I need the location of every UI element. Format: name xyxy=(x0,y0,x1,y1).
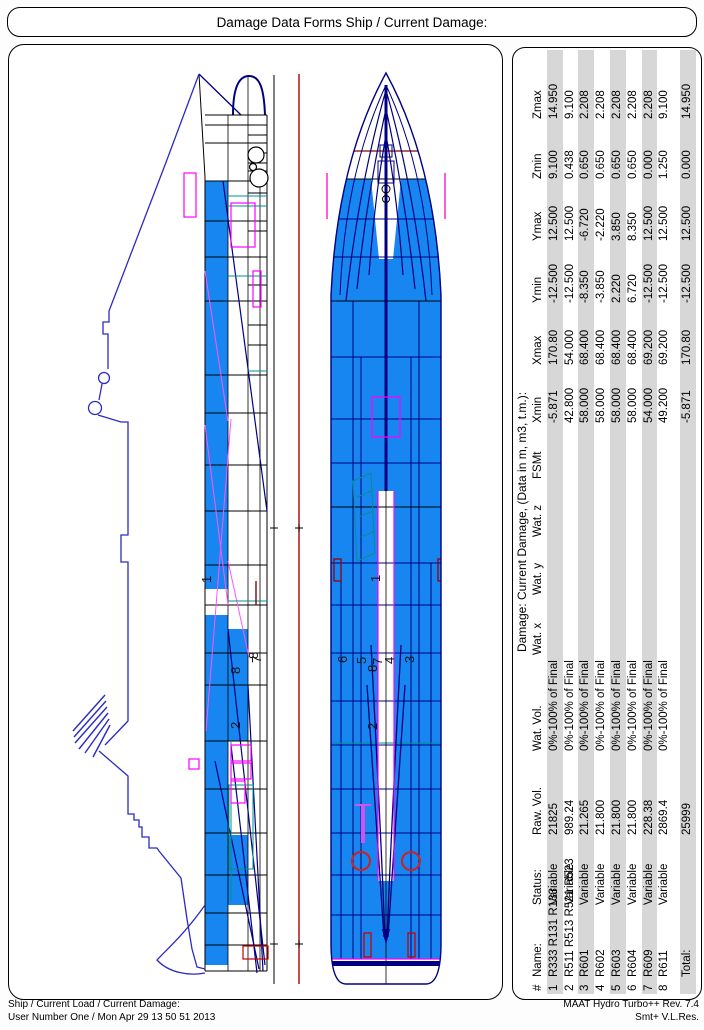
table-cell xyxy=(563,423,579,479)
table-cell: -12.500 xyxy=(680,241,696,303)
table-cell: 9.100 xyxy=(547,119,563,179)
table-cell: R604 xyxy=(626,905,642,977)
table-cell xyxy=(626,595,642,655)
damage-table-panel: Damage: Current Damage, (Data in m, m3, … xyxy=(512,47,702,1000)
table-cell xyxy=(680,423,696,479)
table-cell xyxy=(563,537,579,595)
table-cell xyxy=(563,479,579,537)
table-cell: 42.800 xyxy=(563,365,579,423)
table-cell: 0%-100% of Final xyxy=(563,655,579,751)
footer-app-version: MAAT Hydro Turbo++ Rev. 7.4 xyxy=(563,998,699,1011)
page: Damage Data Forms Ship / Current Damage: xyxy=(0,0,704,1030)
table-cell: 6 xyxy=(626,977,642,991)
table-cell: 68.400 xyxy=(626,303,642,365)
table-cell: -2.220 xyxy=(594,179,610,241)
table-cell: 2.220 xyxy=(610,241,626,303)
table-cell: 58.000 xyxy=(578,365,594,423)
footer-license: Smt+ V.L.Res. xyxy=(563,1011,699,1024)
column-header: Wat. x xyxy=(531,595,547,655)
damage-table-row: 2R511 R513 R521 R523Variable989.240%-100… xyxy=(563,50,579,994)
table-cell: 49.200 xyxy=(657,365,673,423)
table-cell: 21.800 xyxy=(594,751,610,835)
table-cell: 0%-100% of Final xyxy=(610,655,626,751)
compartment-label-5: 5 xyxy=(354,657,369,664)
damage-table-row: 5R603Variable21.8000%-100% of Final58.00… xyxy=(610,50,626,994)
table-cell xyxy=(642,537,658,595)
plan-view: 16587432 xyxy=(327,73,445,984)
table-cell: 12.500 xyxy=(657,179,673,241)
table-cell: 2 xyxy=(563,977,579,991)
table-cell xyxy=(610,479,626,537)
table-cell: R602 xyxy=(594,905,610,977)
centerline-bar xyxy=(385,85,388,491)
table-cell: -8.350 xyxy=(578,241,594,303)
table-cell: 58.000 xyxy=(594,365,610,423)
table-cell: -12.500 xyxy=(563,241,579,303)
footer-right: MAAT Hydro Turbo++ Rev. 7.4 Smt+ V.L.Res… xyxy=(563,998,699,1024)
table-cell: 170.80 xyxy=(547,303,563,365)
table-cell: 68.400 xyxy=(594,303,610,365)
page-title: Damage Data Forms Ship / Current Damage: xyxy=(217,15,488,30)
table-cell: 0%-100% of Final xyxy=(578,655,594,751)
table-cell xyxy=(547,595,563,655)
table-cell: 989.24 xyxy=(563,751,579,835)
table-cell: -6.720 xyxy=(578,179,594,241)
compartment-label-3: 3 xyxy=(402,656,417,663)
table-cell xyxy=(578,423,594,479)
compartment-label-1: 1 xyxy=(199,576,214,583)
table-cell: 0%-100% of Final xyxy=(642,655,658,751)
table-cell: 8.350 xyxy=(626,179,642,241)
table-cell: 6.720 xyxy=(626,241,642,303)
table-cell: 12.500 xyxy=(563,179,579,241)
table-cell: -12.500 xyxy=(547,241,563,303)
damage-table-title: Damage: Current Damage, (Data in m, m3, … xyxy=(514,50,531,994)
compartment-label-8: 8 xyxy=(228,667,243,674)
table-cell: Variable xyxy=(626,835,642,905)
bulbous-bow-dome xyxy=(233,76,265,115)
table-cell xyxy=(578,479,594,537)
table-cell xyxy=(547,479,563,537)
table-cell: 0%-100% of Final xyxy=(657,655,673,751)
column-header: Raw. Vol. xyxy=(531,751,547,835)
table-cell: 0.000 xyxy=(680,119,696,179)
column-header: Status: xyxy=(531,835,547,905)
table-cell: Variable xyxy=(657,835,673,905)
table-cell: 12.500 xyxy=(680,179,696,241)
table-cell: 14.950 xyxy=(680,59,696,119)
table-cell: 3.850 xyxy=(610,179,626,241)
table-cell: -5.871 xyxy=(547,365,563,423)
table-cell: 0.650 xyxy=(610,119,626,179)
table-cell: 12.500 xyxy=(642,179,658,241)
footer-load-line: Ship / Current Load / Current Damage: xyxy=(8,998,215,1011)
table-cell xyxy=(680,835,696,905)
column-header: Wat. Vol. xyxy=(531,655,547,751)
table-cell: Variable xyxy=(594,835,610,905)
table-cell: 0.650 xyxy=(578,119,594,179)
table-cell: 1 xyxy=(547,977,563,991)
crane-mast-hatching xyxy=(73,695,110,757)
table-cell xyxy=(594,423,610,479)
damage-table: Damage: Current Damage, (Data in m, m3, … xyxy=(514,50,697,994)
table-cell: R333 R131 R133 xyxy=(547,905,563,977)
damage-table-row: 3R601Variable21.2650%-100% of Final58.00… xyxy=(578,50,594,994)
table-cell xyxy=(578,595,594,655)
compartment-label-2: 2 xyxy=(228,722,243,729)
damage-table-row: Total:25999-5.871170.80-12.50012.5000.00… xyxy=(680,50,696,994)
table-cell: 2869.4 xyxy=(657,751,673,835)
tick-cross-marks xyxy=(270,524,303,948)
table-cell: 68.400 xyxy=(578,303,594,365)
column-header: Wat. y xyxy=(531,537,547,595)
table-cell: Variable xyxy=(578,835,594,905)
table-cell: 9.100 xyxy=(563,59,579,119)
table-cell: Variable xyxy=(547,835,563,905)
table-cell xyxy=(657,423,673,479)
profile-view: 18782 xyxy=(73,74,268,974)
damage-table-row: 1R333 R131 R133Variable218250%-100% of F… xyxy=(547,50,563,994)
table-cell: 54.000 xyxy=(642,365,658,423)
damage-table-row: 7R609Variable228.380%-100% of Final54.00… xyxy=(642,50,658,994)
table-cell: 9.100 xyxy=(657,59,673,119)
table-cell xyxy=(626,479,642,537)
table-cell xyxy=(578,537,594,595)
table-cell: 0%-100% of Final xyxy=(594,655,610,751)
table-cell: 69.200 xyxy=(642,303,658,365)
table-cell: 0.650 xyxy=(594,119,610,179)
damage-table-row: 8R611Variable2869.40%-100% of Final49.20… xyxy=(657,50,673,994)
damage-table-row: 4R602Variable21.8000%-100% of Final58.00… xyxy=(594,50,610,994)
table-cell xyxy=(563,595,579,655)
table-cell: Variable xyxy=(610,835,626,905)
table-cell: 21.265 xyxy=(578,751,594,835)
table-cell: R603 xyxy=(610,905,626,977)
table-cell: 21.800 xyxy=(610,751,626,835)
superstructure-outline xyxy=(89,74,206,974)
table-cell: 2.208 xyxy=(578,59,594,119)
table-cell xyxy=(642,595,658,655)
table-cell: 12.500 xyxy=(547,179,563,241)
table-cell xyxy=(610,537,626,595)
table-cell: 170.80 xyxy=(680,303,696,365)
table-cell xyxy=(657,479,673,537)
table-cell: 2.208 xyxy=(642,59,658,119)
table-cell: 0.650 xyxy=(626,119,642,179)
table-cell xyxy=(642,423,658,479)
table-cell: R609 xyxy=(642,905,658,977)
table-cell: 0.000 xyxy=(642,119,658,179)
damage-table-header-row: #Name:Status:Raw. Vol.Wat. Vol.Wat. xWat… xyxy=(531,50,547,994)
table-cell xyxy=(610,423,626,479)
table-cell xyxy=(594,479,610,537)
table-cell xyxy=(594,537,610,595)
damage-table-row: 6R604Variable21.8000%-100% of Final58.00… xyxy=(626,50,642,994)
table-cell: 69.200 xyxy=(657,303,673,365)
table-cell: 5 xyxy=(610,977,626,991)
column-header: FSMt xyxy=(531,423,547,479)
table-cell: 58.000 xyxy=(626,365,642,423)
table-cell: -3.850 xyxy=(594,241,610,303)
table-cell: Variable xyxy=(642,835,658,905)
title-bar: Damage Data Forms Ship / Current Damage: xyxy=(7,7,697,37)
table-cell: 2.208 xyxy=(626,59,642,119)
table-cell: 2.208 xyxy=(594,59,610,119)
table-cell xyxy=(680,595,696,655)
table-cell: 21.800 xyxy=(626,751,642,835)
reference-lines xyxy=(270,74,303,984)
table-cell: 68.400 xyxy=(610,303,626,365)
table-cell xyxy=(547,537,563,595)
table-cell xyxy=(680,977,696,991)
compartment-label-8: 8 xyxy=(246,652,261,659)
footer-user-line: User Number One / Mon Apr 29 13 50 51 20… xyxy=(8,1011,215,1024)
compartment-label-2: 2 xyxy=(365,723,380,730)
table-cell: 8 xyxy=(657,977,673,991)
table-cell: 1.250 xyxy=(657,119,673,179)
compartment-label-1: 1 xyxy=(368,575,383,582)
table-cell: 7 xyxy=(642,977,658,991)
table-cell xyxy=(642,479,658,537)
column-header: Ymax xyxy=(531,179,547,241)
column-header: Zmax xyxy=(531,59,547,119)
table-cell: 54.000 xyxy=(563,303,579,365)
table-cell: -12.500 xyxy=(657,241,673,303)
table-cell xyxy=(657,595,673,655)
table-cell: 25999 xyxy=(680,751,696,835)
table-cell xyxy=(680,655,696,751)
table-cell: 14.950 xyxy=(547,59,563,119)
table-cell xyxy=(610,595,626,655)
ship-views-svg: 18782 xyxy=(9,45,500,996)
table-cell: 0%-100% of Final xyxy=(626,655,642,751)
table-cell: 0%-100% of Final xyxy=(547,655,563,751)
table-cell: -5.871 xyxy=(680,365,696,423)
column-header: Ymin xyxy=(531,241,547,303)
footer-left: Ship / Current Load / Current Damage: Us… xyxy=(8,998,215,1024)
table-cell: R601 xyxy=(578,905,594,977)
table-cell xyxy=(680,537,696,595)
table-cell: Variable xyxy=(563,835,579,905)
compartment-label-4: 4 xyxy=(382,657,397,664)
column-header: Xmax xyxy=(531,303,547,365)
table-cell: 21825 xyxy=(547,751,563,835)
table-cell: R611 xyxy=(657,905,673,977)
column-header: Name: xyxy=(531,905,547,977)
table-cell xyxy=(626,423,642,479)
ship-drawing-panel: 18782 xyxy=(8,44,503,1000)
table-cell xyxy=(680,479,696,537)
table-cell: 4 xyxy=(594,977,610,991)
table-cell: Total: xyxy=(680,905,696,977)
compartment-label-6: 6 xyxy=(335,656,350,663)
table-cell: 2.208 xyxy=(610,59,626,119)
column-header: Wat. z xyxy=(531,479,547,537)
table-cell: 58.000 xyxy=(610,365,626,423)
column-header: # xyxy=(531,977,547,991)
table-cell: R511 R513 R521 R523 xyxy=(563,905,579,977)
table-cell xyxy=(657,537,673,595)
table-cell xyxy=(626,537,642,595)
table-cell: 228.38 xyxy=(642,751,658,835)
damage-table-rows: #Name:Status:Raw. Vol.Wat. Vol.Wat. xWat… xyxy=(531,50,696,994)
column-header: Xmin xyxy=(531,365,547,423)
table-cell xyxy=(594,595,610,655)
table-cell: -12.500 xyxy=(642,241,658,303)
table-cell: 0.438 xyxy=(563,119,579,179)
column-header: Zmin xyxy=(531,119,547,179)
table-cell xyxy=(547,423,563,479)
table-cell: 3 xyxy=(578,977,594,991)
